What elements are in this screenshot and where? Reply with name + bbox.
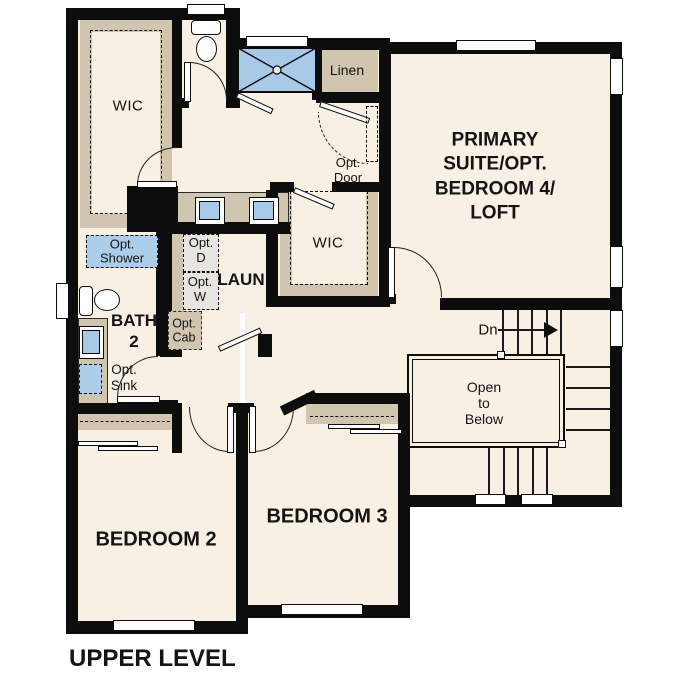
toilet-bowl-icon	[94, 289, 120, 311]
newel-post	[497, 351, 505, 359]
window	[281, 604, 363, 615]
stair-tread	[503, 448, 505, 495]
toilet-tank-icon	[79, 286, 93, 316]
room-label-wic-primary: WIC	[113, 97, 144, 114]
door-leaf-bedroom2	[227, 406, 234, 453]
window	[187, 4, 225, 15]
label-opt-dryer: Opt. D	[189, 236, 214, 266]
window	[610, 310, 623, 347]
bedroom3-closet	[306, 402, 398, 424]
bedroom3-closet-rod	[310, 416, 394, 417]
window	[610, 58, 623, 95]
stair-direction-line	[498, 329, 546, 331]
label-opt-sink: Opt. Sink	[111, 362, 137, 394]
floor-plan: WIC Linen Opt. Door PRIMARY SUITE/OPT. B…	[0, 0, 687, 687]
stair-tread	[566, 429, 610, 431]
stair-tread	[517, 448, 519, 495]
toilet-tank-icon	[191, 20, 221, 35]
window	[521, 494, 553, 505]
label-stairs-down: Dn	[478, 321, 497, 338]
door-leaf-toilet-room	[184, 62, 191, 102]
room-label-wic-hall: WIC	[313, 234, 344, 251]
door-leaf-bath2	[117, 396, 160, 403]
window	[56, 283, 69, 319]
room-label-bedroom3: BEDROOM 3	[266, 506, 387, 529]
bypass-door-bedroom3-b	[350, 429, 402, 434]
toilet-bowl-icon	[196, 36, 217, 62]
wall	[66, 403, 177, 414]
wall	[404, 495, 622, 507]
sink-frame	[249, 197, 279, 225]
wall	[316, 92, 380, 103]
sink-basin-icon	[82, 330, 100, 354]
stair-tread	[517, 310, 519, 356]
door-leaf-primary-suite	[388, 247, 395, 298]
window	[456, 40, 536, 51]
opt-sink-basin-icon	[79, 364, 102, 394]
wall	[66, 8, 78, 633]
door-leaf-bedroom3	[249, 406, 256, 453]
sink-basin-icon	[199, 201, 220, 220]
label-opt-shower: Opt. Shower	[100, 237, 144, 264]
sink-frame	[79, 326, 104, 359]
label-opt-cab: Opt. Cab	[172, 317, 196, 346]
wall	[172, 8, 182, 148]
stair-tread	[566, 366, 610, 368]
window	[113, 620, 195, 631]
plan-title: UPPER LEVEL	[69, 645, 236, 673]
bypass-door-bedroom2-b	[98, 446, 158, 451]
label-opt-door: Opt. Door	[334, 156, 362, 186]
wall	[172, 403, 182, 453]
room-label-linen: Linen	[330, 62, 364, 78]
stair-direction-arrow	[544, 322, 558, 338]
shower-pan-icon	[237, 47, 317, 93]
wall	[440, 298, 622, 310]
window	[475, 494, 506, 505]
stair-tread	[566, 387, 610, 389]
stair-edge	[560, 310, 562, 356]
stair-tread	[546, 448, 548, 495]
stair-tread	[488, 448, 490, 495]
room-label-bath2: BATH 2	[111, 310, 157, 353]
newel-post	[558, 440, 566, 448]
label-opt-washer: Opt. W	[188, 275, 213, 305]
window	[246, 36, 308, 47]
bedroom2-closet-rod	[80, 421, 170, 422]
door-leaf-wic-primary	[137, 181, 177, 188]
room-label-laundry: LAUN	[217, 270, 264, 290]
room-label-bedroom2: BEDROOM 2	[95, 529, 216, 552]
stair-tread	[566, 408, 610, 410]
wall	[236, 404, 248, 628]
wall	[258, 334, 272, 357]
wall	[266, 296, 390, 307]
label-open-to-below: Open to Below	[465, 379, 503, 427]
wall	[306, 393, 410, 404]
sink-basin-icon	[253, 201, 274, 220]
stair-tread	[532, 448, 534, 495]
stair-tread	[531, 310, 533, 356]
sink-frame	[195, 197, 225, 225]
room-label-primary-suite: PRIMARY SUITE/OPT. BEDROOM 4/ LOFT	[435, 128, 555, 225]
stair-tread	[502, 310, 504, 356]
window	[610, 246, 623, 288]
